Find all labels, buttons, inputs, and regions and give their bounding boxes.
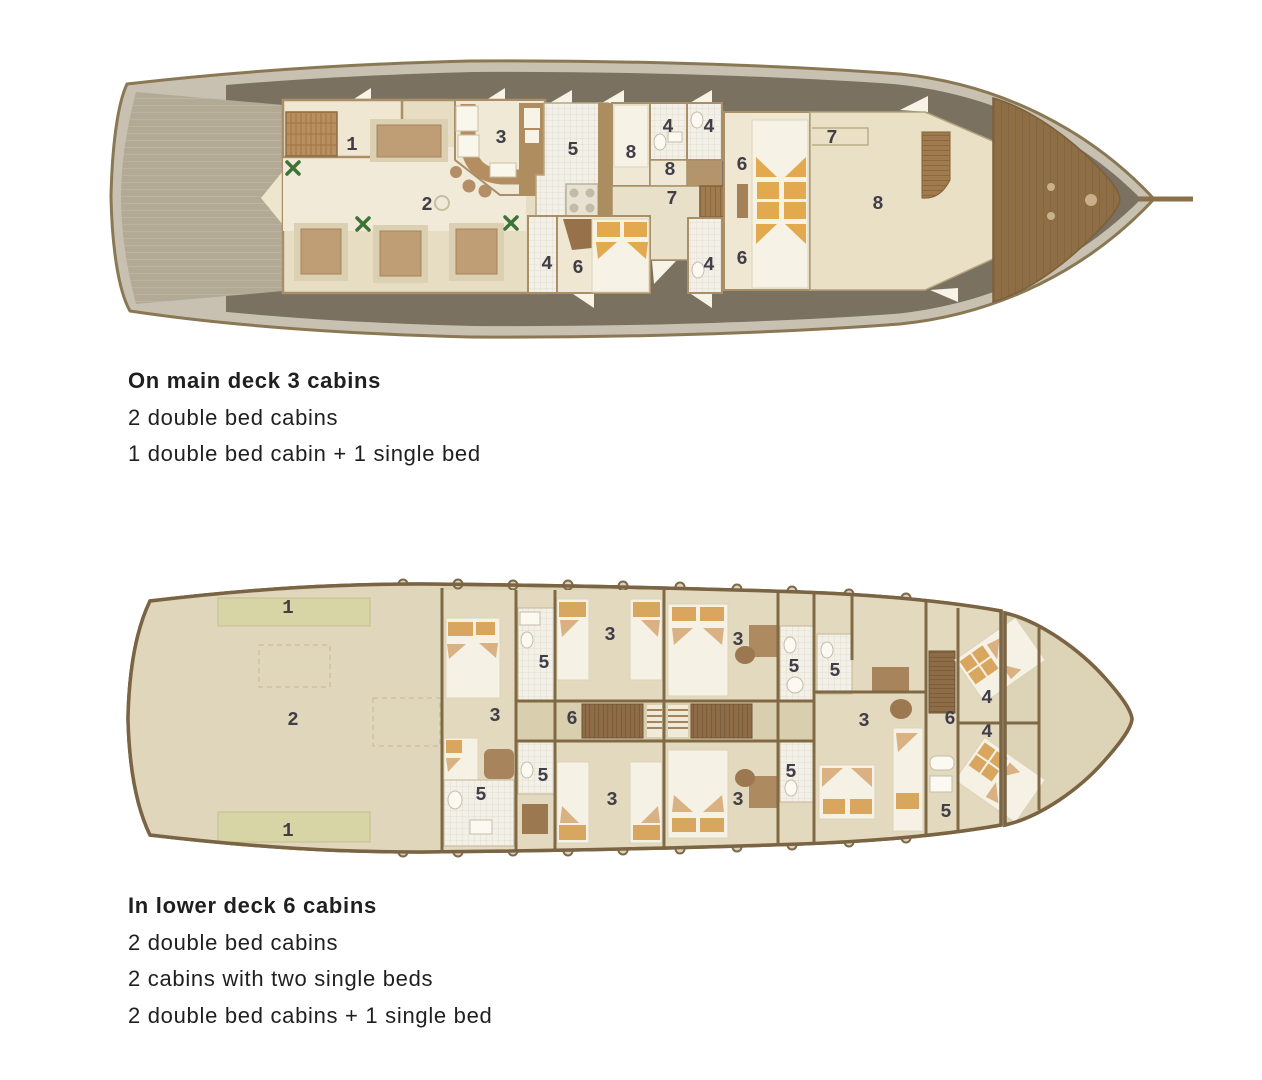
svg-text:5: 5 [940, 801, 951, 823]
svg-text:3: 3 [604, 624, 615, 646]
svg-text:3: 3 [606, 789, 617, 811]
svg-text:5: 5 [475, 784, 486, 806]
svg-text:4: 4 [703, 116, 714, 138]
svg-text:1: 1 [282, 597, 293, 619]
svg-text:5: 5 [785, 761, 796, 783]
svg-text:6: 6 [736, 154, 747, 176]
svg-text:8: 8 [664, 159, 675, 181]
svg-text:3: 3 [732, 789, 743, 811]
svg-text:5: 5 [829, 660, 840, 682]
svg-text:4: 4 [703, 254, 714, 276]
svg-text:6: 6 [566, 708, 577, 730]
svg-text:6: 6 [944, 708, 955, 730]
svg-text:7: 7 [826, 127, 837, 149]
svg-text:5: 5 [788, 656, 799, 678]
svg-text:2: 2 [421, 194, 432, 216]
svg-text:1: 1 [282, 820, 293, 842]
svg-text:8: 8 [872, 193, 883, 215]
svg-text:2: 2 [287, 709, 298, 731]
svg-text:5: 5 [567, 139, 578, 161]
svg-text:4: 4 [662, 116, 673, 138]
svg-text:3: 3 [489, 705, 500, 727]
svg-text:3: 3 [858, 710, 869, 732]
svg-text:1: 1 [346, 134, 357, 156]
svg-text:5: 5 [538, 652, 549, 674]
svg-text:3: 3 [732, 629, 743, 651]
svg-text:7: 7 [666, 188, 677, 210]
svg-text:4: 4 [541, 253, 552, 275]
svg-text:4: 4 [981, 687, 992, 709]
svg-text:6: 6 [572, 257, 583, 279]
svg-text:3: 3 [495, 127, 506, 149]
svg-text:5: 5 [537, 765, 548, 787]
svg-text:8: 8 [625, 142, 636, 164]
svg-text:6: 6 [736, 248, 747, 270]
